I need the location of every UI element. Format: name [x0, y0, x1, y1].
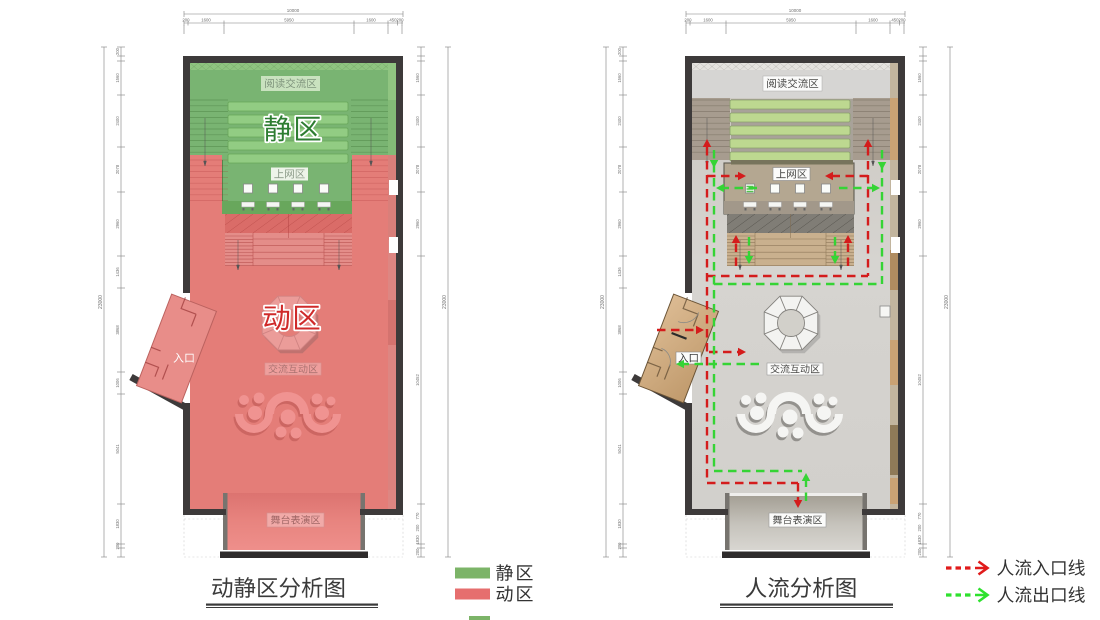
svg-text:2078: 2078 [617, 164, 622, 174]
svg-text:770: 770 [917, 512, 922, 520]
svg-text:1600: 1600 [201, 18, 211, 23]
svg-text:23000: 23000 [98, 295, 104, 309]
svg-text:3868: 3868 [617, 325, 622, 335]
svg-text:200: 200 [617, 47, 622, 55]
svg-text:1006: 1006 [115, 378, 120, 388]
svg-text:1560: 1560 [617, 73, 622, 83]
svg-text:5041: 5041 [115, 444, 120, 454]
svg-text:5041: 5041 [617, 444, 622, 454]
svg-text:200: 200 [617, 542, 622, 550]
svg-text:2078: 2078 [415, 164, 420, 174]
svg-text:10000: 10000 [789, 8, 802, 13]
svg-text:2960: 2960 [617, 219, 622, 229]
svg-text:1436: 1436 [617, 267, 622, 277]
svg-text:23000: 23000 [442, 295, 448, 309]
svg-text:200: 200 [415, 524, 420, 532]
svg-text:2078: 2078 [115, 164, 120, 174]
svg-text:1006: 1006 [617, 378, 622, 388]
svg-text:2400: 2400 [917, 116, 922, 126]
svg-text:1560: 1560 [115, 73, 120, 83]
svg-text:2960: 2960 [415, 219, 420, 229]
svg-text:200: 200 [898, 18, 906, 23]
svg-text:5950: 5950 [284, 18, 294, 23]
svg-text:200: 200 [917, 548, 922, 556]
svg-text:200: 200 [415, 548, 420, 556]
svg-text:2078: 2078 [917, 164, 922, 174]
svg-text:10452: 10452 [917, 374, 922, 386]
svg-text:1830: 1830 [415, 535, 420, 545]
svg-text:1600: 1600 [366, 18, 376, 23]
svg-text:1560: 1560 [415, 73, 420, 83]
svg-text:2400: 2400 [115, 116, 120, 126]
svg-text:23000: 23000 [944, 295, 950, 309]
svg-text:200: 200 [684, 18, 692, 23]
svg-text:1830: 1830 [115, 519, 120, 529]
svg-text:2400: 2400 [415, 116, 420, 126]
svg-text:5950: 5950 [786, 18, 796, 23]
svg-text:2960: 2960 [917, 219, 922, 229]
svg-text:200: 200 [115, 542, 120, 550]
svg-text:2960: 2960 [115, 219, 120, 229]
svg-text:10000: 10000 [287, 8, 300, 13]
svg-text:1560: 1560 [917, 73, 922, 83]
svg-text:1830: 1830 [617, 519, 622, 529]
svg-text:23000: 23000 [600, 295, 606, 309]
svg-text:200: 200 [182, 18, 190, 23]
svg-text:2400: 2400 [617, 116, 622, 126]
svg-text:770: 770 [415, 512, 420, 520]
svg-text:200: 200 [115, 47, 120, 55]
svg-text:200: 200 [396, 18, 404, 23]
svg-text:10452: 10452 [415, 374, 420, 386]
svg-text:1436: 1436 [115, 267, 120, 277]
svg-text:1600: 1600 [868, 18, 878, 23]
svg-text:200: 200 [917, 524, 922, 532]
svg-text:1830: 1830 [917, 535, 922, 545]
svg-text:1600: 1600 [703, 18, 713, 23]
svg-text:3868: 3868 [115, 325, 120, 335]
